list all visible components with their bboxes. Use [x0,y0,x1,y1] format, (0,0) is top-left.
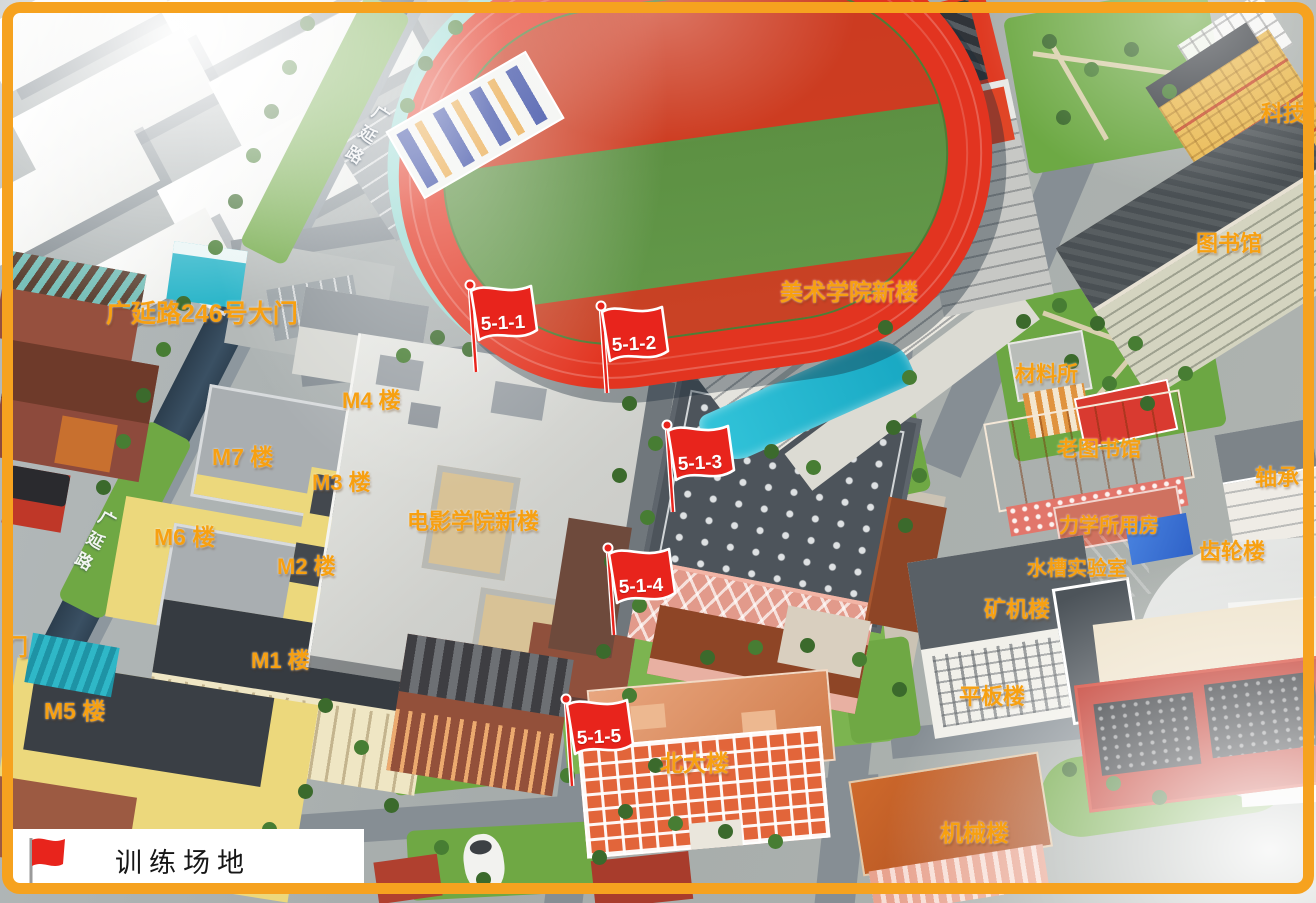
red-house [1,465,70,533]
label-flat: 平板楼 [959,686,1025,708]
campus-map: 广延路 广延路 广延路246号大门 M4 楼 M7 楼 M3 楼 M6 楼 M2… [0,0,1316,903]
legend: 训练场地 [10,829,364,891]
label-north-building: 北大楼 [660,752,729,775]
label-water-tank: 水槽实验室 [1027,559,1127,579]
label-mechanics: 力学所用房 [1059,516,1159,536]
building-flat [1069,615,1316,807]
teal-building [166,241,247,309]
label-gear: 齿轮楼 [1199,541,1265,563]
entrance [689,819,743,849]
red-roof-house [373,854,442,903]
roof [6,465,71,507]
label-machinery: 机械楼 [940,822,1009,845]
flag-label: 5-1-3 [670,451,729,476]
label-mining: 矿机楼 [984,599,1050,621]
label-gate-246: 广延路246号大门 [106,302,298,327]
map-scene: 广延路 广延路 广延路246号大门 M4 楼 M7 楼 M3 楼 M6 楼 M2… [0,0,1316,903]
legend-flag-icon [23,834,69,886]
brick-south-wing [386,634,574,797]
label-m7: M7 楼 [212,446,273,469]
flag-label: 5-1-4 [611,574,670,599]
window-panel [1204,671,1316,758]
label-film-academy: 电影学院新楼 [407,511,539,533]
red-roof-house [591,851,693,903]
label-art-academy: 美术学院新楼 [780,281,918,304]
label-keji: 科技 [1261,103,1305,125]
roof-unit [376,355,424,392]
label-m5: M5 楼 [44,700,105,723]
label-materials: 材料所 [1015,364,1078,385]
label-bearing: 轴承 [1255,467,1299,489]
flag-label: 5-1-5 [569,725,628,750]
legend-label: 训练场地 [115,841,251,880]
flag-marker-4[interactable]: 5-1-4 [596,539,688,641]
flag-marker-1[interactable]: 5-1-1 [458,276,550,378]
label-m6: M6 楼 [154,526,215,549]
orange-shed [54,416,117,473]
flag-marker-5[interactable]: 5-1-5 [554,690,646,792]
roof [1,340,159,424]
label-m4: M4 楼 [342,390,401,412]
window-panel [1093,692,1201,776]
label-m1: M1 楼 [251,650,310,672]
label-library: 图书馆 [1196,233,1262,255]
label-door: 门 [5,636,28,659]
label-old-library: 老图书馆 [1057,439,1141,460]
flag-marker-3[interactable]: 5-1-3 [655,416,747,518]
flag-marker-2[interactable]: 5-1-2 [589,297,681,399]
label-m2: M2 楼 [277,556,336,578]
flag-label: 5-1-1 [473,311,532,336]
flag-label: 5-1-2 [604,332,663,357]
label-m3: M3 楼 [312,472,371,494]
trees [0,0,15,15]
sculpture-window [469,839,493,856]
